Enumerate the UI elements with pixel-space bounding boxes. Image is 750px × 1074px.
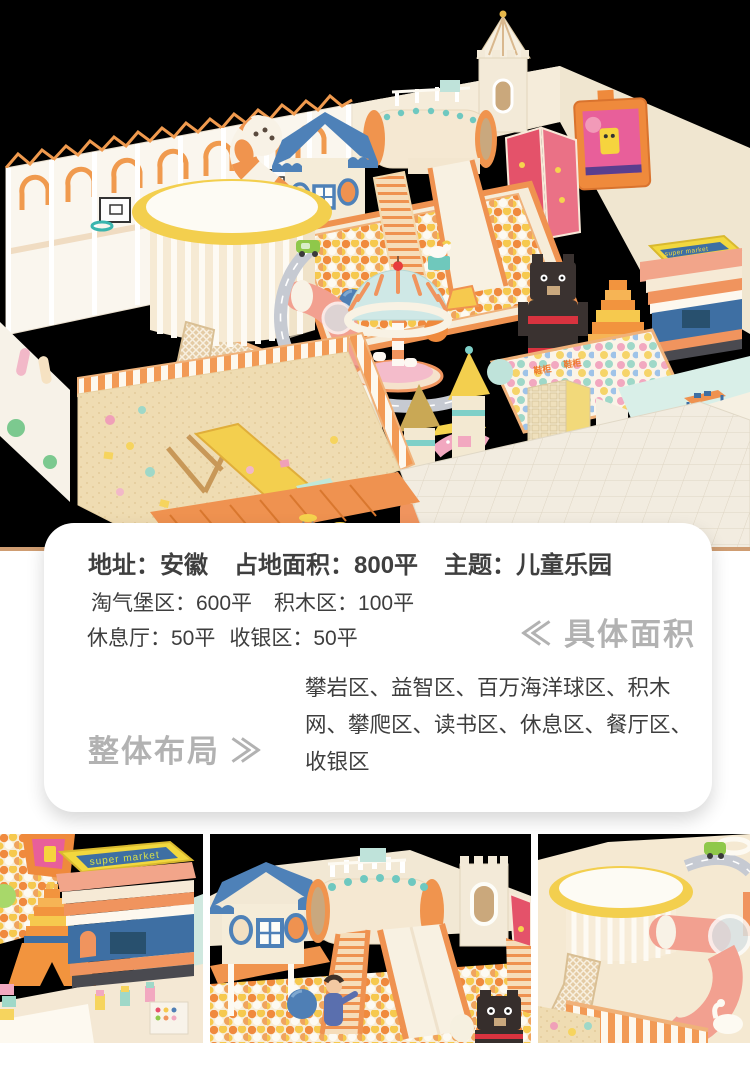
project-summary: 地址：安徽 占地面积：800平 主题：儿童乐园 [88, 545, 612, 580]
playground-detail-page: super market [0, 0, 750, 1074]
castle-tower-closeup [460, 856, 508, 946]
address-text: 地址：安徽 [88, 545, 208, 580]
photo-lego-zone: super market [0, 834, 203, 1043]
photo-tower-net [538, 834, 750, 1043]
overall-layout-heading: 整体布局 ≫ [88, 726, 264, 771]
photo-slide-ballpit [210, 834, 531, 1043]
cashier-area: 收银区：50平 [229, 622, 357, 652]
area-text: 占地面积：800平 [234, 545, 418, 580]
zone-areas-row2: 休息厅：50平 收银区：50平 [87, 622, 358, 652]
tv-screen [573, 88, 650, 190]
playground-render: super market [0, 0, 750, 551]
lounge-area: 休息厅：50平 [87, 622, 215, 652]
layout-description: 攀岩区、益智区、百万海洋球区、积木网、攀爬区、读书区、休息区、餐厅区、收银区 [305, 670, 701, 781]
project-info-card: 地址：安徽 占地面积：800平 主题：儿童乐园 淘气堡区：600平 积木区：10… [44, 523, 712, 812]
naughty-castle-area: 淘气堡区：600平 [91, 587, 252, 617]
blocks-area: 积木区：100平 [274, 587, 414, 617]
lego-supermarket-closeup: super market [56, 842, 196, 988]
theme-text: 主题：儿童乐园 [444, 545, 612, 580]
zone-areas-row1: 淘气堡区：600平 积木区：100平 [91, 587, 414, 617]
specific-area-heading: ≪ 具体面积 [520, 609, 696, 654]
